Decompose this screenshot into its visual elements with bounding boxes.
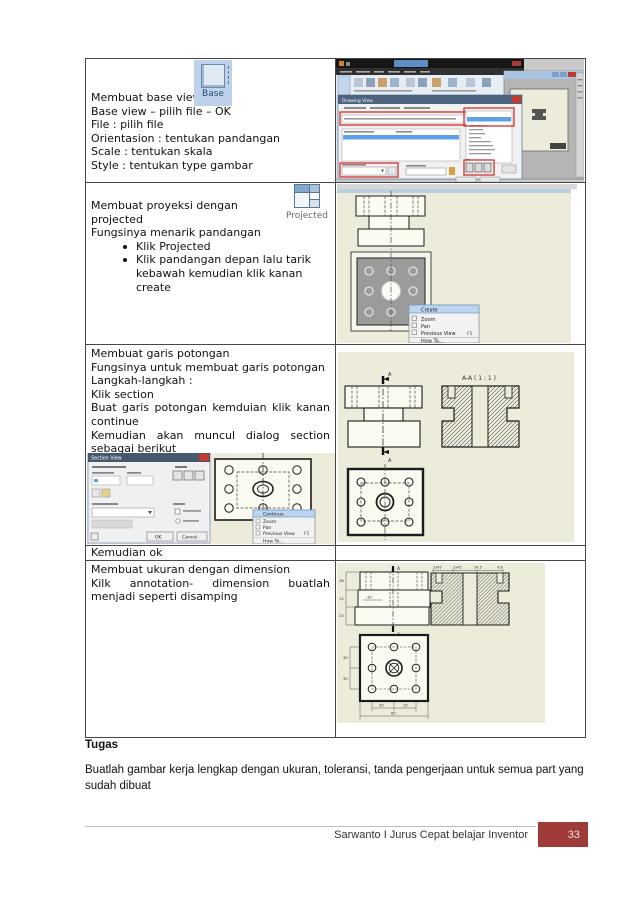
instruction-table: Base Membuat base view Base view – pilih… bbox=[85, 58, 586, 738]
dimensioned-views-canvas: 38 12 25 30 A A bbox=[337, 563, 547, 725]
text-line: Scale : tentukan skala bbox=[91, 145, 330, 159]
text-line: Klik section bbox=[91, 388, 330, 402]
document-page: Base Membuat base view Base view – pilih… bbox=[0, 0, 638, 903]
dim-label: 2x45 bbox=[433, 566, 442, 570]
cell-section-text: Membuat garis potongan Fungsinya untuk m… bbox=[86, 345, 336, 545]
row-section: Membuat garis potongan Fungsinya untuk m… bbox=[86, 345, 585, 546]
text-line: Style : tentukan type gambar bbox=[91, 159, 330, 173]
dim-label: 30 bbox=[343, 655, 348, 660]
bullet-list: Klik Projected Klik pandangan depan lalu… bbox=[91, 240, 330, 294]
menu-item-how-to: How To... bbox=[263, 539, 284, 545]
section-view-dialog: Section View bbox=[88, 453, 210, 543]
tugas-heading: Tugas bbox=[85, 739, 118, 751]
text-line: Fungsinya untuk membuat garis potongan bbox=[91, 361, 330, 375]
cell-empty bbox=[336, 546, 584, 560]
dim-label: 15 bbox=[403, 703, 408, 708]
menu-item-previous-view: Previous View bbox=[263, 531, 295, 537]
dim-label: 60 bbox=[391, 711, 396, 716]
text-line: Base view – pilih file – OK bbox=[91, 105, 330, 119]
section-view-hatched bbox=[442, 386, 519, 447]
section-label: A-A ( 1 : 1 ) bbox=[462, 375, 496, 382]
cell-dimension-text: Membuat ukuran dengan dimension Kilk ann… bbox=[86, 561, 336, 737]
dim-label: 30 bbox=[367, 595, 372, 600]
menu-shortcut: F5 bbox=[467, 331, 473, 337]
base-icon-label: Base bbox=[194, 89, 232, 100]
section-dialog-screenshot: Section View bbox=[87, 453, 335, 544]
projected-views-canvas: Create Zoom Pan Previous View F5 How To.… bbox=[337, 189, 571, 343]
menu-item-how-to: How To... bbox=[421, 339, 444, 344]
dim-label: 2x45 bbox=[453, 566, 462, 570]
text-line: Fungsinya menarik pandangan bbox=[91, 226, 330, 240]
row-dimension: Membuat ukuran dengan dimension Kilk ann… bbox=[86, 561, 585, 737]
row-base-view: Base Membuat base view Base view – pilih… bbox=[86, 59, 585, 183]
dim-label: 38 bbox=[339, 578, 344, 583]
text-line: Kemudian akan muncul dialog section seba… bbox=[91, 429, 330, 456]
dim-label: 12 bbox=[339, 596, 344, 601]
cell-dimension-screenshot: 38 12 25 30 A A bbox=[336, 561, 584, 737]
text-line: Membuat proyeksi dengan projected bbox=[91, 199, 279, 226]
text-line: File : pilih file bbox=[91, 118, 330, 132]
footer: Sarwanto I Jurus Cepat belajar Inventor … bbox=[85, 822, 588, 847]
cancel-button-label: Cancel bbox=[182, 535, 197, 541]
dialog-title: Drawing View bbox=[342, 98, 373, 104]
dim-label: 30 bbox=[343, 676, 348, 681]
context-menu-continue: Continue Zoom Pan Previous View F5 How T… bbox=[253, 510, 315, 544]
cell-projected-text: Projected Membuat proyeksi dengan projec… bbox=[86, 183, 336, 344]
section-views-canvas: A-A ( 1 : 1 ) bbox=[338, 352, 576, 544]
text-line: Membuat ukuran dengan dimension bbox=[91, 563, 330, 577]
footer-text: Sarwanto I Jurus Cepat belajar Inventor bbox=[334, 829, 528, 841]
menu-item-create: Create bbox=[421, 307, 438, 313]
text-line: Buat garis potongan kemduian klik kanan … bbox=[91, 401, 330, 428]
text-line: Langkah-langkah : bbox=[91, 374, 330, 388]
cell-base-view-screenshot: Drawing View bbox=[336, 59, 584, 182]
projected-icon-glyph bbox=[294, 184, 320, 208]
page-number-badge: 33 bbox=[538, 822, 588, 847]
menu-item-zoom: Zoom bbox=[421, 317, 436, 323]
section-view-dimensioned: 2x45 2x45 24.5 4.8 bbox=[431, 566, 509, 626]
row-projected: Projected Membuat proyeksi dengan projec… bbox=[86, 183, 585, 345]
tugas-body: Buatlah gambar kerja lengkap dengan ukur… bbox=[85, 762, 591, 794]
cell-section-screenshot: A-A ( 1 : 1 ) bbox=[336, 345, 584, 545]
dim-label: 24.5 bbox=[474, 566, 482, 570]
base-view-icon-glyph bbox=[201, 64, 225, 88]
base-view-icon: Base bbox=[194, 60, 232, 106]
cell-base-view-text: Base Membuat base view Base view – pilih… bbox=[86, 59, 336, 182]
text-line: Membuat garis potongan bbox=[91, 347, 330, 361]
menu-item-pan: Pan bbox=[263, 525, 271, 531]
menu-item-zoom: Zoom bbox=[263, 519, 277, 525]
projected-icon: Projected bbox=[285, 184, 329, 224]
ok-button-label: OK bbox=[155, 535, 163, 541]
text-line: Orientasion : tentukan pandangan bbox=[91, 132, 330, 146]
inventor-drawing-view-screenshot: Drawing View bbox=[336, 59, 584, 182]
menu-item-pan: Pan bbox=[421, 324, 430, 330]
menu-shortcut: F5 bbox=[304, 531, 309, 537]
projected-icon-label: Projected bbox=[285, 210, 329, 222]
cut-marker-a-bottom: A bbox=[388, 458, 392, 464]
menu-item-continue: Continue bbox=[263, 512, 284, 518]
bullet-item: Klik pandangan depan lalu tarik kebawah … bbox=[91, 253, 330, 294]
bullet-item: Klik Projected bbox=[91, 240, 330, 254]
text-line: Kilk annotation- dimension buatlah menja… bbox=[91, 577, 330, 604]
bullet-dot bbox=[123, 258, 127, 262]
cut-marker-a-top: A bbox=[388, 372, 392, 378]
menu-item-previous-view: Previous View bbox=[421, 331, 456, 337]
dim-label: 25 bbox=[339, 613, 344, 618]
dim-label: 30 bbox=[379, 703, 384, 708]
text-line: Kemudian ok bbox=[91, 546, 330, 559]
dialog-title: Section View bbox=[91, 456, 122, 462]
context-menu-create: Create Zoom Pan Previous View F5 How To.… bbox=[409, 305, 479, 343]
cell-projected-screenshot: Create Zoom Pan Previous View F5 How To.… bbox=[336, 183, 584, 344]
bullet-dot bbox=[123, 245, 127, 249]
cell-kemudian-ok: Kemudian ok bbox=[86, 546, 336, 560]
dim-label: 4.8 bbox=[497, 566, 503, 570]
drawing-view-dialog: Drawing View bbox=[338, 95, 522, 179]
row-kemudian-ok: Kemudian ok bbox=[86, 546, 585, 561]
top-view bbox=[348, 464, 423, 540]
